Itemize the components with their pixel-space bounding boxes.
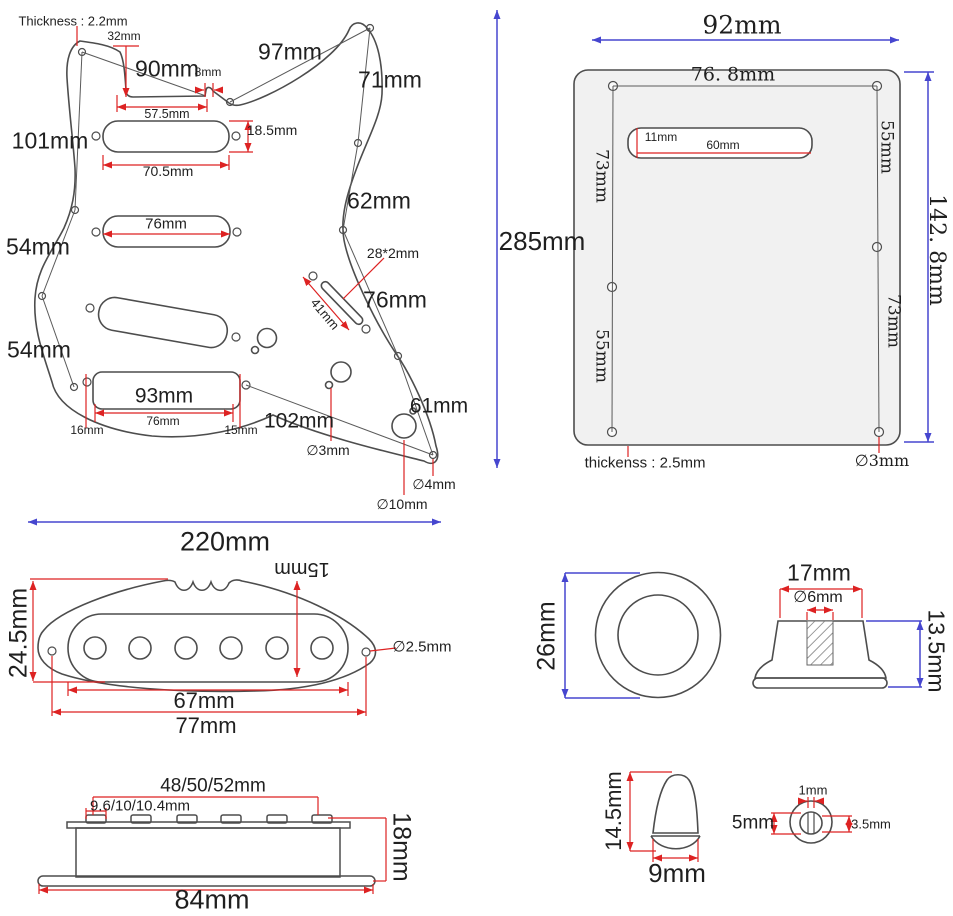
dim-tip-height-14-5mm: 14.5mm: [603, 771, 625, 850]
dim-71mm: 71mm: [358, 69, 422, 92]
dim-tip-slot-1mm: 1mm: [799, 784, 828, 797]
dim-right-upper-55mm: 55mm: [878, 120, 895, 174]
dim-76mm-bridge: 76mm: [146, 415, 179, 427]
dim-right-lower-73mm: 73mm: [885, 294, 902, 348]
diagram-linework: [0, 0, 953, 916]
knob-top-outline: [596, 573, 721, 698]
dim-93mm: 93mm: [135, 386, 193, 407]
backplate-thickness-note: thickenss : 2.5mm: [585, 456, 706, 471]
dim-cover-67mm: 67mm: [173, 690, 234, 712]
pickguard-blue-dimensions: [28, 10, 497, 522]
knob-top-blue-dimensions: [565, 573, 640, 698]
dim-tip-width-9mm: 9mm: [648, 860, 706, 886]
dim-knob-top-17mm: 17mm: [787, 562, 851, 585]
dim-backplate-hole-3mm: ∅3mm: [855, 453, 909, 469]
dim-base-84mm: 84mm: [174, 887, 249, 914]
dim-18-5mm: 18.5mm: [247, 123, 298, 137]
knob-side-outline: [753, 621, 887, 688]
dim-knob-height-13-5mm: 13.5mm: [925, 609, 948, 692]
dim-54mm-upper: 54mm: [6, 236, 70, 259]
pickup-cover-outline: [38, 580, 376, 691]
dim-15mm: 15mm: [224, 424, 257, 436]
dim-61mm: 61mm: [410, 396, 468, 417]
dim-cover-77mm: 77mm: [175, 715, 236, 737]
dim-tip-hole-5mm: 5mm: [732, 814, 774, 833]
dim-cover-height-24-5mm: 24.5mm: [7, 588, 32, 678]
dim-28x2mm: 28*2mm: [367, 246, 419, 260]
dim-16mm: 16mm: [70, 424, 103, 436]
dim-76mm-right: 76mm: [363, 289, 427, 312]
dim-slot-11mm: 11mm: [645, 131, 677, 143]
dim-70-5mm: 70.5mm: [143, 164, 194, 178]
dim-hole-4mm: ∅4mm: [412, 477, 455, 491]
dim-8mm: 8mm: [195, 66, 222, 78]
dim-knob-shaft-6mm: ∅6mm: [793, 590, 843, 606]
dim-knob-diameter-26mm: 26mm: [535, 601, 560, 670]
dim-54mm-lower: 54mm: [7, 339, 71, 362]
dim-side-height-18mm: 18mm: [389, 812, 414, 881]
dim-cover-hole-2-5mm: ∅2.5mm: [393, 640, 452, 655]
backplate-outline: [574, 70, 900, 445]
dim-32mm: 32mm: [107, 30, 140, 42]
dim-pickguard-width-220mm: 220mm: [180, 529, 270, 556]
dim-tip-inner-3-5mm: 3.5mm: [851, 818, 891, 831]
switch-tip-bottom-red-dimensions: [771, 797, 852, 834]
dim-97mm: 97mm: [258, 41, 322, 64]
dim-slot-60mm: 60mm: [706, 139, 739, 151]
dim-hole-3mm: ∅3mm: [306, 443, 349, 457]
dim-76mm-middle: 76mm: [145, 217, 187, 232]
dim-left-lower-55mm: 55mm: [593, 329, 610, 383]
dim-cover-slot-15mm: 15mm: [274, 559, 330, 579]
switch-tip-bottom-outline: [790, 801, 832, 843]
switch-tip-outline: [651, 775, 700, 849]
dim-62mm: 62mm: [347, 190, 411, 213]
dim-hole-10mm: ∅10mm: [376, 497, 427, 511]
dim-pole-spread: 48/50/52mm: [160, 777, 266, 796]
dim-left-upper-73mm: 73mm: [593, 149, 610, 203]
dim-57-5mm: 57.5mm: [144, 108, 189, 121]
dim-backplate-height-142-8mm: 142. 8mm: [925, 194, 947, 306]
guitar-parts-dimension-diagram: Thickness : 2.2mm 32mm 90mm 8mm 57.5mm 9…: [0, 0, 953, 916]
dim-pole-pitch: 9.6/10/10.4mm: [90, 799, 190, 814]
dim-101mm: 101mm: [12, 130, 89, 153]
pickguard-thickness-note: Thickness : 2.2mm: [18, 15, 127, 28]
dim-backplate-width-92mm: 92mm: [702, 13, 781, 38]
knob-side-blue-dimensions: [866, 621, 922, 687]
dim-90mm: 90mm: [135, 58, 199, 81]
pickup-side-outline: [38, 815, 375, 886]
dim-screw-span-76-8mm: 76. 8mm: [691, 66, 775, 85]
dim-102mm: 102mm: [264, 411, 334, 432]
dim-pickguard-height-285mm: 285mm: [499, 228, 586, 254]
